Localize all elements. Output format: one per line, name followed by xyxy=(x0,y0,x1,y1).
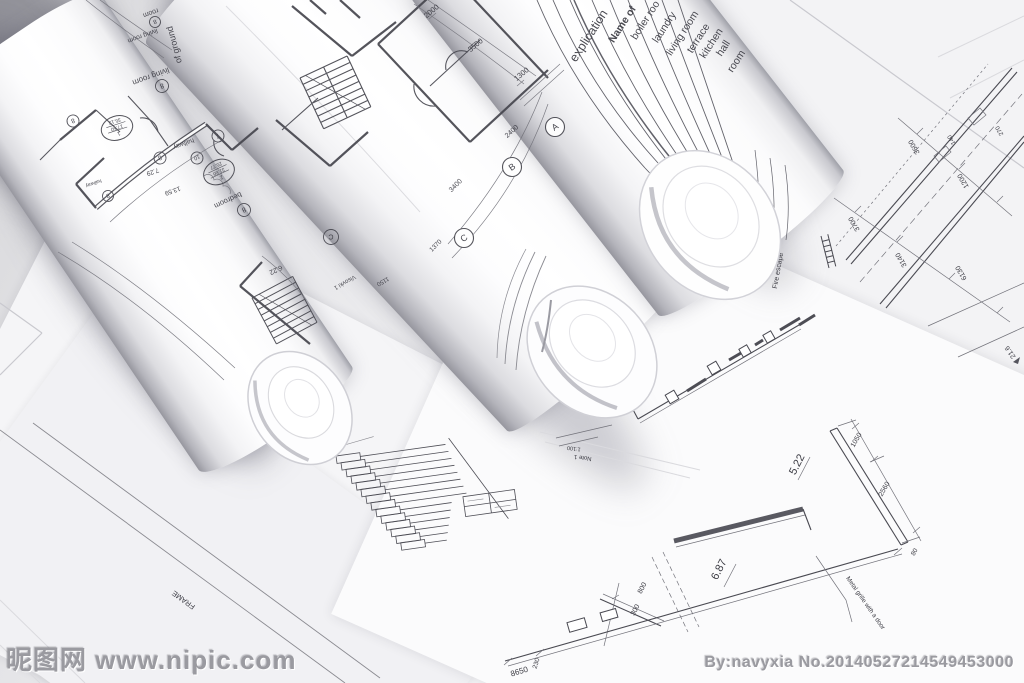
watermark-site: 昵图网 www.nipic.com xyxy=(6,640,297,677)
circle-7: 7 xyxy=(214,131,221,139)
watermark-site-url: www.nipic.com xyxy=(95,645,296,675)
left-room-label: room xyxy=(142,6,160,18)
watermark-site-name: 昵图网 xyxy=(6,645,87,675)
left-visovki: Visovki 1 xyxy=(332,273,356,290)
watermark-credit: By:navyxia No.20140527214549453000 xyxy=(704,654,1014,672)
photo-rolled-blueprints: FRAME 3600 1200 3700 3140 6130 270 140 xyxy=(0,0,1024,683)
